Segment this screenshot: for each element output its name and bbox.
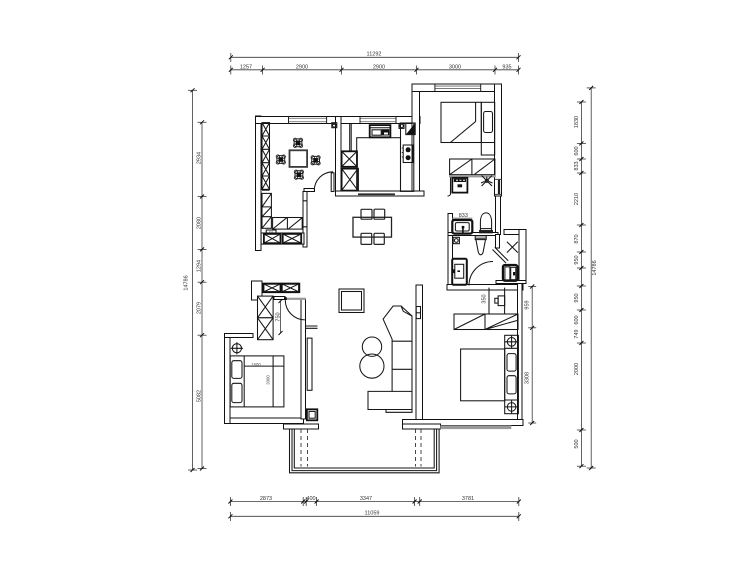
svg-text:3308: 3308	[525, 372, 531, 384]
svg-text:2873: 2873	[260, 496, 272, 502]
svg-text:11292: 11292	[367, 52, 382, 58]
svg-text:833: 833	[459, 213, 468, 219]
svg-text:2210: 2210	[574, 193, 580, 205]
svg-text:1294: 1294	[197, 260, 203, 272]
svg-text:350: 350	[481, 294, 487, 303]
svg-text:3000: 3000	[449, 64, 461, 70]
svg-text:2000: 2000	[574, 363, 580, 375]
svg-text:14786: 14786	[183, 275, 189, 290]
svg-text:749: 749	[574, 329, 580, 338]
svg-text:1500: 1500	[251, 362, 261, 367]
svg-text:950: 950	[574, 255, 580, 264]
svg-text:500: 500	[574, 439, 580, 448]
svg-text:1257: 1257	[240, 64, 252, 70]
svg-text:5082: 5082	[197, 390, 203, 402]
svg-text:2080: 2080	[197, 217, 203, 229]
svg-text:2900: 2900	[296, 64, 308, 70]
svg-text:2900: 2900	[373, 64, 385, 70]
svg-text:600: 600	[574, 146, 580, 155]
svg-text:2934: 2934	[197, 152, 203, 164]
svg-text:400: 400	[306, 496, 315, 502]
svg-text:2000: 2000	[266, 375, 271, 385]
svg-text:2079: 2079	[197, 302, 203, 314]
svg-text:870: 870	[574, 234, 580, 243]
svg-text:935: 935	[502, 64, 511, 70]
svg-text:3347: 3347	[360, 496, 372, 502]
svg-text:950: 950	[574, 293, 580, 302]
svg-text:959: 959	[525, 300, 531, 309]
svg-text:11059: 11059	[365, 511, 380, 517]
svg-text:600: 600	[574, 315, 580, 324]
svg-text:833: 833	[574, 161, 580, 170]
svg-text:3781: 3781	[462, 496, 474, 502]
svg-text:1830: 1830	[574, 116, 580, 128]
svg-text:14786: 14786	[592, 260, 598, 275]
svg-text:750: 750	[276, 312, 282, 321]
